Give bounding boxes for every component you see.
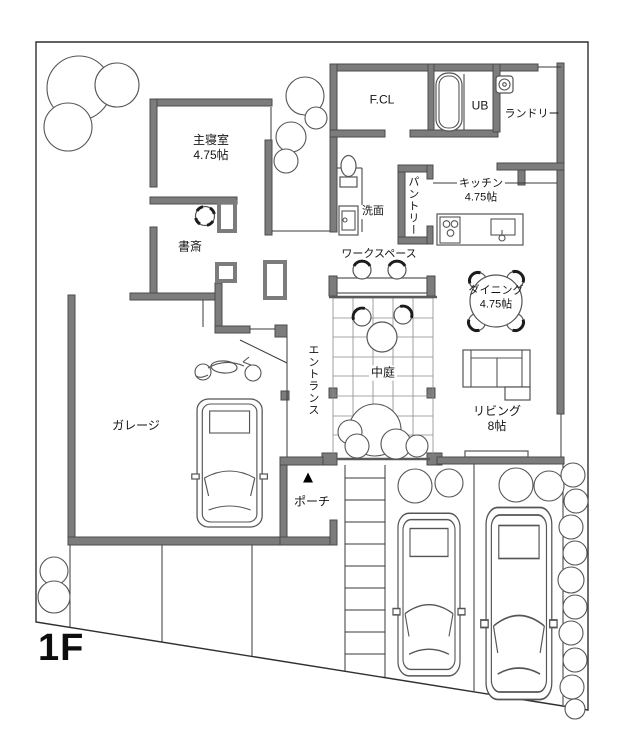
washing-machine-icon (496, 76, 513, 93)
kitchen-counter (437, 214, 523, 245)
floor-label: 1F (38, 625, 84, 673)
room-label-master-bedroom: 主寝室 4.75帖 (193, 133, 229, 163)
room-label-porch: ポーチ (294, 495, 330, 510)
room-label-dining: ダイニング 4.75帖 (469, 284, 524, 312)
room-label-courtyard: 中庭 (369, 366, 397, 381)
chair-icon (390, 302, 415, 327)
courtyard-table-set (349, 302, 415, 352)
floor-plan: F.CL UB ランドリー 主寝室 4.75帖 書斎 洗面 パントリー キッチン… (0, 0, 623, 750)
entrance-arrow-icon: ▲ (300, 466, 317, 487)
chair-icon (353, 261, 371, 279)
round-table-icon (367, 322, 397, 352)
walkway-steps (345, 478, 385, 654)
room-label-kitchen: キッチン 4.75帖 (457, 177, 505, 205)
motorcycle-icon (195, 357, 261, 381)
room-label-laundry: ランドリー (505, 108, 560, 122)
workspace-desk (337, 261, 427, 293)
study-closet (219, 202, 235, 231)
room-label-fcl: F.CL (370, 93, 395, 108)
room-label-entrance: エントランス (305, 344, 319, 416)
car-icon (481, 508, 557, 700)
washbasin-icon (339, 206, 358, 235)
car-icon (192, 399, 268, 527)
closets (217, 202, 285, 298)
room-label-workspace: ワークスペース (341, 248, 416, 262)
chair-icon (388, 261, 406, 279)
room-label-living: リビング 8帖 (473, 404, 521, 434)
hall-closet-1 (217, 264, 235, 281)
hall-closet-2 (265, 262, 285, 298)
study-chair-icon (196, 207, 215, 226)
living-window (465, 451, 528, 457)
bathtub-icon (436, 73, 462, 131)
car-icon (393, 513, 465, 676)
toilet-icon (340, 156, 357, 188)
room-label-study: 書斎 (178, 240, 202, 255)
room-label-garage: ガレージ (112, 419, 160, 434)
sofa-icon (463, 350, 530, 400)
room-label-washroom: 洗面 (360, 205, 386, 219)
room-label-pantry: パントリー (405, 176, 419, 236)
room-label-ub: UB (472, 99, 489, 114)
